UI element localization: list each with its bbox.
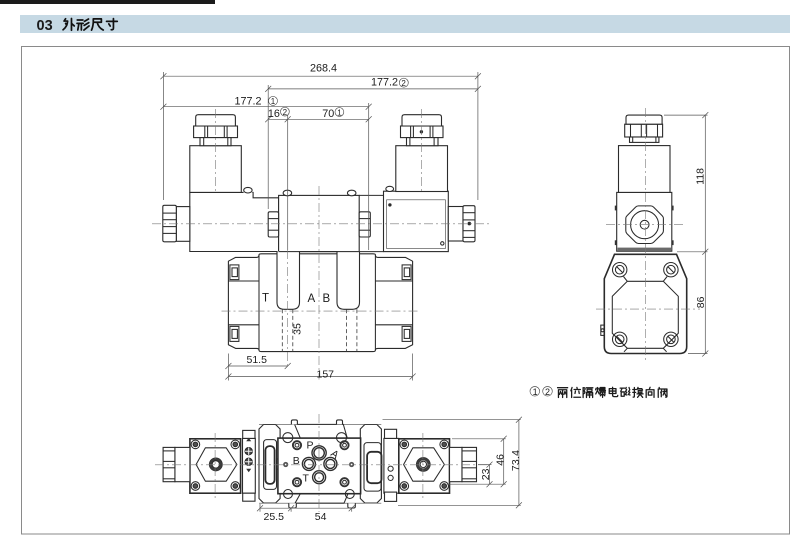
svg-text:03: 03 <box>37 18 53 34</box>
svg-text:1: 1 <box>337 108 342 117</box>
svg-text:B: B <box>293 455 300 467</box>
svg-text:16: 16 <box>268 108 280 120</box>
svg-text:T: T <box>303 473 310 485</box>
svg-text:P: P <box>307 440 314 452</box>
svg-text:268.4: 268.4 <box>310 63 337 75</box>
svg-text:51.5: 51.5 <box>247 354 268 366</box>
svg-text:2: 2 <box>401 79 406 88</box>
svg-text:157: 157 <box>317 369 335 381</box>
svg-text:B: B <box>323 293 331 305</box>
svg-text:2: 2 <box>283 108 288 117</box>
svg-text:23: 23 <box>480 468 492 480</box>
svg-text:177.2: 177.2 <box>235 96 262 108</box>
svg-text:2: 2 <box>545 387 550 397</box>
svg-text:25.5: 25.5 <box>264 511 285 523</box>
svg-text:177.2: 177.2 <box>371 77 398 89</box>
svg-text:73.4: 73.4 <box>510 450 522 471</box>
svg-text:1: 1 <box>271 97 276 106</box>
svg-text:118: 118 <box>694 168 706 185</box>
svg-text:A: A <box>308 293 316 305</box>
svg-text:1: 1 <box>533 387 538 397</box>
svg-text:86: 86 <box>695 296 707 308</box>
svg-text:35: 35 <box>292 323 304 335</box>
svg-text:54: 54 <box>315 511 327 523</box>
svg-text:46: 46 <box>494 454 506 466</box>
svg-text:T: T <box>262 293 269 305</box>
svg-text:70: 70 <box>322 108 334 120</box>
